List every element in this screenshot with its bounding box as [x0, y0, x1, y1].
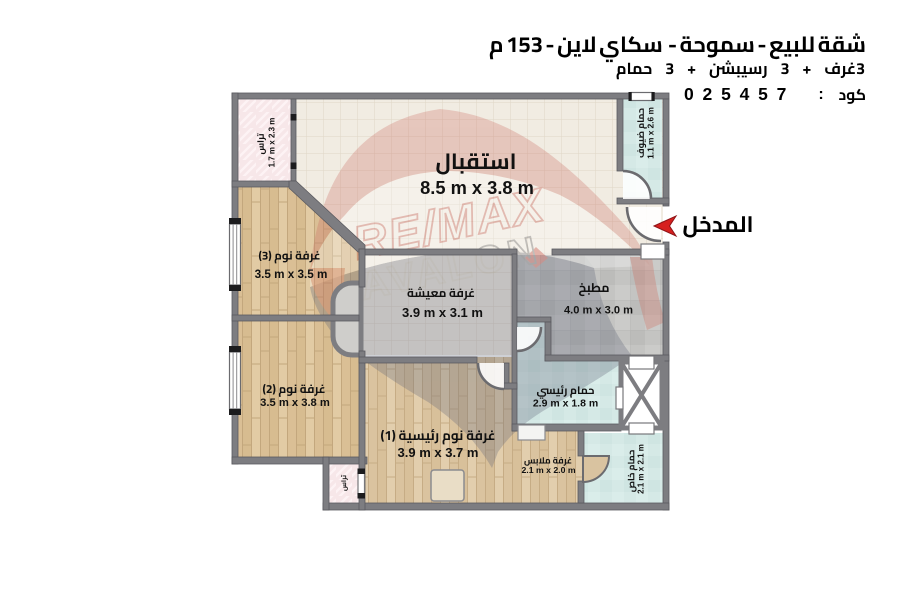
svg-text::: : — [818, 86, 823, 103]
svg-text:2.1 m x 2.0 m: 2.1 m x 2.0 m — [521, 465, 575, 475]
svg-text:1.7 m x 2.3 m: 1.7 m x 2.3 m — [267, 118, 276, 168]
svg-text:3.5 m x 3.5 m: 3.5 m x 3.5 m — [255, 268, 328, 281]
svg-text:3.5 m x 3.8 m: 3.5 m x 3.8 m — [260, 397, 330, 409]
svg-text:4.0 m x 3.0 m: 4.0 m x 3.0 m — [564, 305, 633, 317]
svg-text:2.1 m x 2.1 m: 2.1 m x 2.1 m — [636, 444, 645, 494]
svg-text:3.9 m x 3.1 m: 3.9 m x 3.1 m — [402, 305, 483, 320]
svg-text:1.1 m x 2.6 m: 1.1 m x 2.6 m — [646, 107, 656, 159]
svg-text:025457: 025457 — [684, 84, 795, 104]
svg-text:8.5 m x 3.8 m: 8.5 m x 3.8 m — [420, 177, 534, 198]
svg-text:3.9 m x 3.7 m: 3.9 m x 3.7 m — [398, 445, 479, 460]
svg-text:2.9 m x 1.8 m: 2.9 m x 1.8 m — [533, 398, 598, 410]
